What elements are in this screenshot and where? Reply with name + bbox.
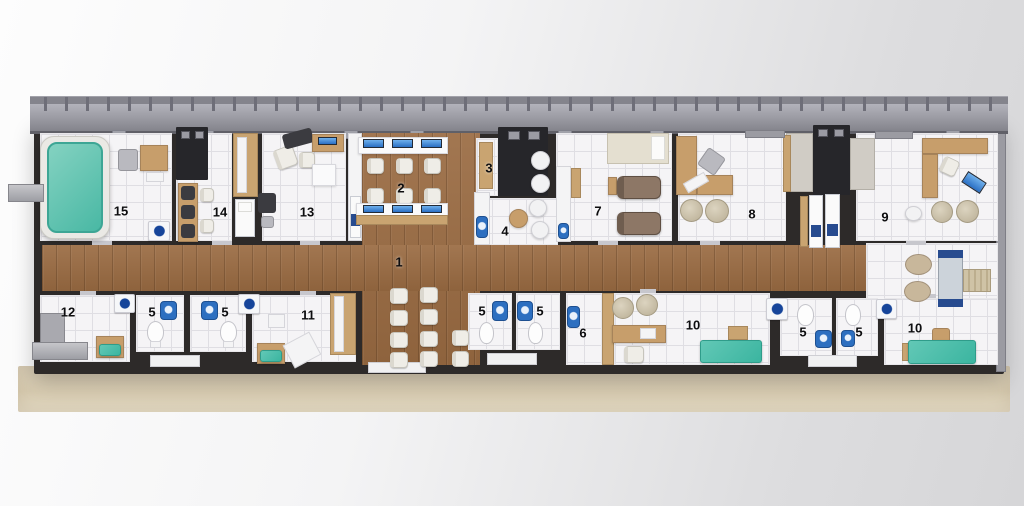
wall-sink-unit [876, 299, 897, 319]
room-label-3: 3 [485, 161, 492, 176]
roof-rafter-tick [779, 97, 782, 111]
door-gap [598, 241, 618, 245]
door-gap [906, 241, 926, 245]
room-label-10: 10 [686, 318, 700, 333]
chair [396, 158, 413, 174]
closet-slot [195, 131, 204, 139]
room-label-5: 5 [799, 325, 806, 340]
roof-rafter-tick [191, 97, 194, 111]
cabinet-front [334, 296, 344, 352]
device [640, 328, 656, 339]
desk [612, 325, 666, 343]
recliner-chair [617, 176, 661, 199]
roof-rafter-tick [128, 97, 131, 111]
monitor-screen [318, 137, 337, 145]
door-gap [212, 241, 232, 245]
waiting-chair [390, 332, 408, 348]
roof-rafter-tick [863, 97, 866, 111]
room-label-4: 4 [501, 224, 508, 239]
recliner-chair [617, 212, 661, 235]
side-door [150, 355, 200, 367]
teal-treatment-table [700, 340, 762, 363]
closet-slot [508, 131, 520, 140]
device [268, 314, 285, 328]
roof-rafter-tick [443, 97, 446, 111]
roof-rafter-tick [65, 97, 68, 111]
roof-rafter-tick [275, 97, 278, 111]
monitor [181, 186, 195, 200]
roof-rafter-tick [212, 97, 215, 111]
floor-sink-unit [148, 221, 170, 241]
slat-bench [963, 269, 991, 292]
room-label-5: 5 [536, 304, 543, 319]
side-door [808, 355, 857, 367]
bed-plank [800, 196, 808, 247]
table-wood-edge [356, 215, 448, 225]
roof-rafter-tick [317, 97, 320, 111]
pouf [705, 199, 729, 223]
roof-rafter-tick [716, 97, 719, 111]
roof-rafter-tick [800, 97, 803, 111]
pouf [636, 294, 658, 316]
pouf [931, 201, 953, 223]
wall-sink-unit [766, 298, 788, 320]
pouf [956, 200, 979, 223]
room-label-5: 5 [221, 305, 228, 320]
teal-mat [99, 344, 121, 356]
room-label-10: 10 [908, 321, 922, 336]
roof-rafter-tick [233, 97, 236, 111]
exam-bed [825, 194, 840, 248]
toilet [905, 254, 932, 275]
roof-rafter-tick [695, 97, 698, 111]
chair [367, 188, 384, 204]
roof-rafter-tick [254, 97, 257, 111]
cabinet-sink [558, 223, 569, 239]
wall-sink [905, 206, 922, 221]
pillow [651, 136, 665, 160]
side-stand [728, 326, 748, 340]
roof-rafter-tick [611, 97, 614, 111]
bath-sink [160, 301, 177, 320]
desk [140, 145, 168, 171]
roof-rafter-tick [338, 97, 341, 111]
chair [367, 158, 384, 174]
roof-rafter-tick [506, 97, 509, 111]
toilet [147, 321, 164, 343]
roof-rafter-tick [590, 97, 593, 111]
waiting-chair [390, 310, 408, 326]
monitor [181, 205, 195, 219]
toilet [528, 322, 543, 344]
stool [261, 216, 274, 228]
roof-rafter-tick [149, 97, 152, 111]
closet-slot [528, 131, 540, 140]
closet-slot [818, 129, 828, 137]
door-gap [700, 241, 720, 245]
chair [624, 346, 644, 363]
roof-rafter-tick [569, 97, 572, 111]
toilet [845, 304, 861, 326]
monitor-screen [421, 139, 442, 148]
pouf [680, 199, 703, 222]
side-desk [258, 193, 276, 213]
roof-rafter-tick [947, 97, 950, 111]
roof-rafter-tick [674, 97, 677, 111]
waiting-chair [420, 309, 438, 325]
teal-mat [260, 350, 282, 362]
bath-sink [201, 301, 218, 320]
roof-rafter-tick [359, 97, 362, 111]
toilet-tank [223, 341, 234, 348]
roof-rafter-tick [842, 97, 845, 111]
round-chair [531, 174, 550, 193]
roof-rafter-tick [653, 97, 656, 111]
door-gap [640, 289, 656, 293]
roof-rafter-tick [170, 97, 173, 111]
closet-concrete-right [850, 138, 875, 190]
desk-top [922, 138, 988, 154]
roof-rafter-tick [905, 97, 908, 111]
pillow [238, 202, 252, 212]
roof-rafter-tick [989, 97, 992, 111]
monitor-screen [421, 205, 442, 213]
wall-shelf [875, 131, 913, 139]
bath-sink [841, 330, 855, 347]
office-chair [118, 149, 138, 171]
room-label-5: 5 [148, 305, 155, 320]
work-table [312, 164, 336, 186]
bed-blanket [827, 224, 838, 236]
floor-plan-scene: 1234555555678910101112131415 [0, 0, 1024, 506]
side-door [487, 353, 537, 365]
chair [200, 188, 214, 202]
toilet-tank [150, 341, 161, 348]
wall-sink-unit [114, 294, 135, 313]
toilet [904, 281, 931, 302]
bath-sink [815, 330, 832, 348]
door-gap [80, 291, 96, 295]
hydrotherapy-tub [47, 142, 103, 233]
waiting-chair [420, 287, 438, 303]
door-gap [92, 241, 112, 245]
room-label-5: 5 [478, 304, 485, 319]
round-table [509, 209, 528, 228]
room-label-7: 7 [594, 204, 601, 219]
roof-rafter-tick [485, 97, 488, 111]
monitor [181, 224, 195, 238]
room-label-8: 8 [748, 207, 755, 222]
room-label-9: 9 [881, 210, 888, 225]
roof-rafter-tick [632, 97, 635, 111]
waiting-chair [390, 352, 408, 368]
monitor-screen [363, 205, 384, 213]
chair [200, 219, 214, 233]
roof-rafter-tick [926, 97, 929, 111]
closet-slot [834, 129, 844, 137]
monitor-screen [392, 139, 413, 148]
exam-bed [809, 195, 823, 248]
toilet [797, 304, 814, 326]
closet-wood-edge [783, 135, 791, 192]
monitor-screen [363, 139, 384, 148]
room-label-5: 5 [855, 325, 862, 340]
closet-slot [181, 131, 190, 139]
bath-sink [492, 301, 508, 321]
desk-side [922, 154, 938, 198]
toilet [479, 322, 494, 344]
roof-rafter-tick [884, 97, 887, 111]
round-chair [529, 199, 547, 217]
roof-rafter-tick [44, 97, 47, 111]
room-label-11: 11 [301, 308, 315, 323]
shower-sink [567, 306, 580, 328]
roof-rafter-tick [548, 97, 551, 111]
toilet [220, 321, 237, 343]
shower-frame [938, 250, 963, 258]
round-chair [531, 151, 550, 170]
corridor-1-wood-floor [42, 245, 866, 291]
door-gap [300, 241, 320, 245]
room-label-1: 1 [395, 255, 402, 270]
cabinet-front [237, 137, 247, 193]
cabinet [571, 168, 581, 198]
roof-rafter-tick [758, 97, 761, 111]
waiting-chair [390, 288, 408, 304]
room-label-13: 13 [300, 205, 314, 220]
side-table [146, 172, 164, 182]
waiting-chair [452, 330, 469, 346]
room-label-6: 6 [579, 326, 586, 341]
roof-rafter-tick [86, 97, 89, 111]
roof-rafter-tick [296, 97, 299, 111]
chair [424, 188, 441, 204]
exterior-lift-arm [8, 184, 44, 202]
waiting-chair [420, 331, 438, 347]
wall-shelf [745, 130, 785, 138]
roof-rafter-tick [422, 97, 425, 111]
side-table [608, 177, 617, 195]
bath-sink [517, 301, 533, 321]
pouf [612, 297, 634, 319]
room-label-12: 12 [61, 305, 75, 320]
roof-rafter-tick [968, 97, 971, 111]
roof-rafter-tick [821, 97, 824, 111]
counter-sink [476, 216, 488, 238]
roof-rafter-tick [401, 97, 404, 111]
roof-rafter-tick [527, 97, 530, 111]
monitor-screen [392, 205, 413, 213]
roof-rafter-tick [464, 97, 467, 111]
waiting-chair [452, 351, 469, 367]
teal-treatment-table [908, 340, 976, 364]
shower-frame [938, 299, 963, 307]
room-label-14: 14 [213, 205, 227, 220]
roof-rafter-tick [107, 97, 110, 111]
wall-sink-unit [238, 294, 260, 314]
roof-rafter-tick [380, 97, 383, 111]
round-chair [531, 221, 549, 239]
chair [424, 158, 441, 174]
door-gap [300, 291, 316, 295]
waiting-chair [420, 351, 438, 367]
bed-blanket [811, 225, 821, 237]
room-label-15: 15 [114, 204, 128, 219]
equipment-desk [32, 342, 88, 360]
roof-rafter-tick [737, 97, 740, 111]
room-label-2: 2 [397, 181, 404, 196]
